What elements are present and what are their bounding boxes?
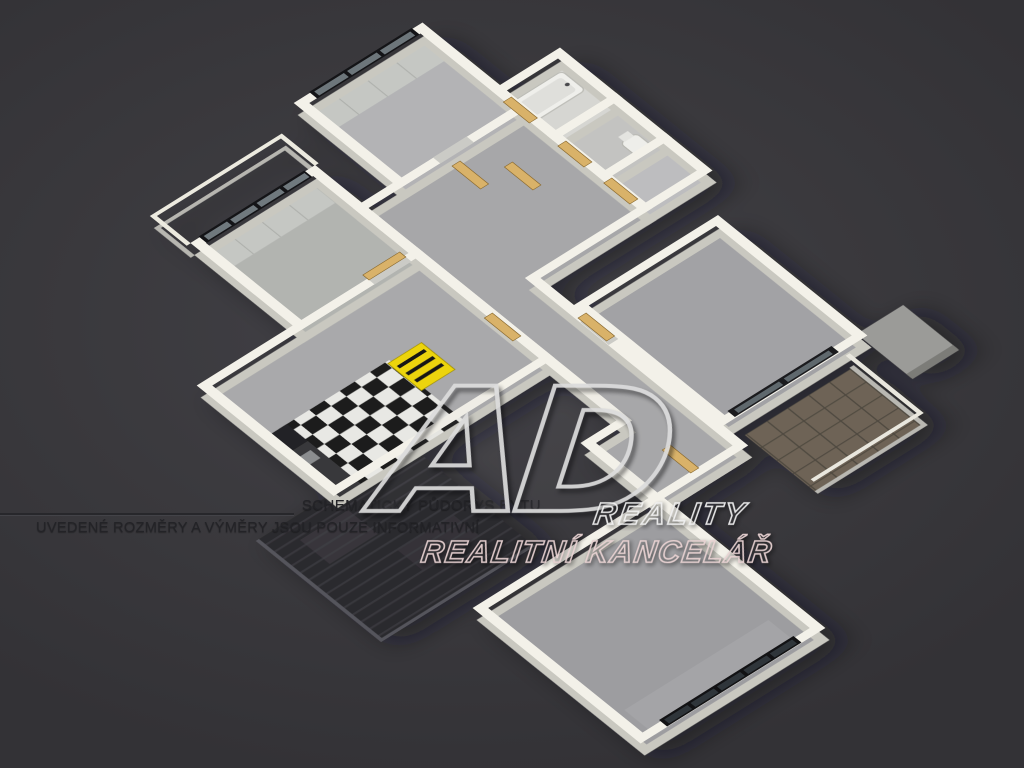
screenshot-root: SCHEMATICKÝ PŮDORYS BYTU UVEDENÉ ROZMĚRY…	[0, 0, 1024, 768]
balcony-awning	[857, 305, 958, 378]
watermark-reality-text: REALITY	[591, 496, 750, 532]
watermark-kancelar-text: REALITNÍ KANCELÁŘ	[419, 534, 775, 570]
